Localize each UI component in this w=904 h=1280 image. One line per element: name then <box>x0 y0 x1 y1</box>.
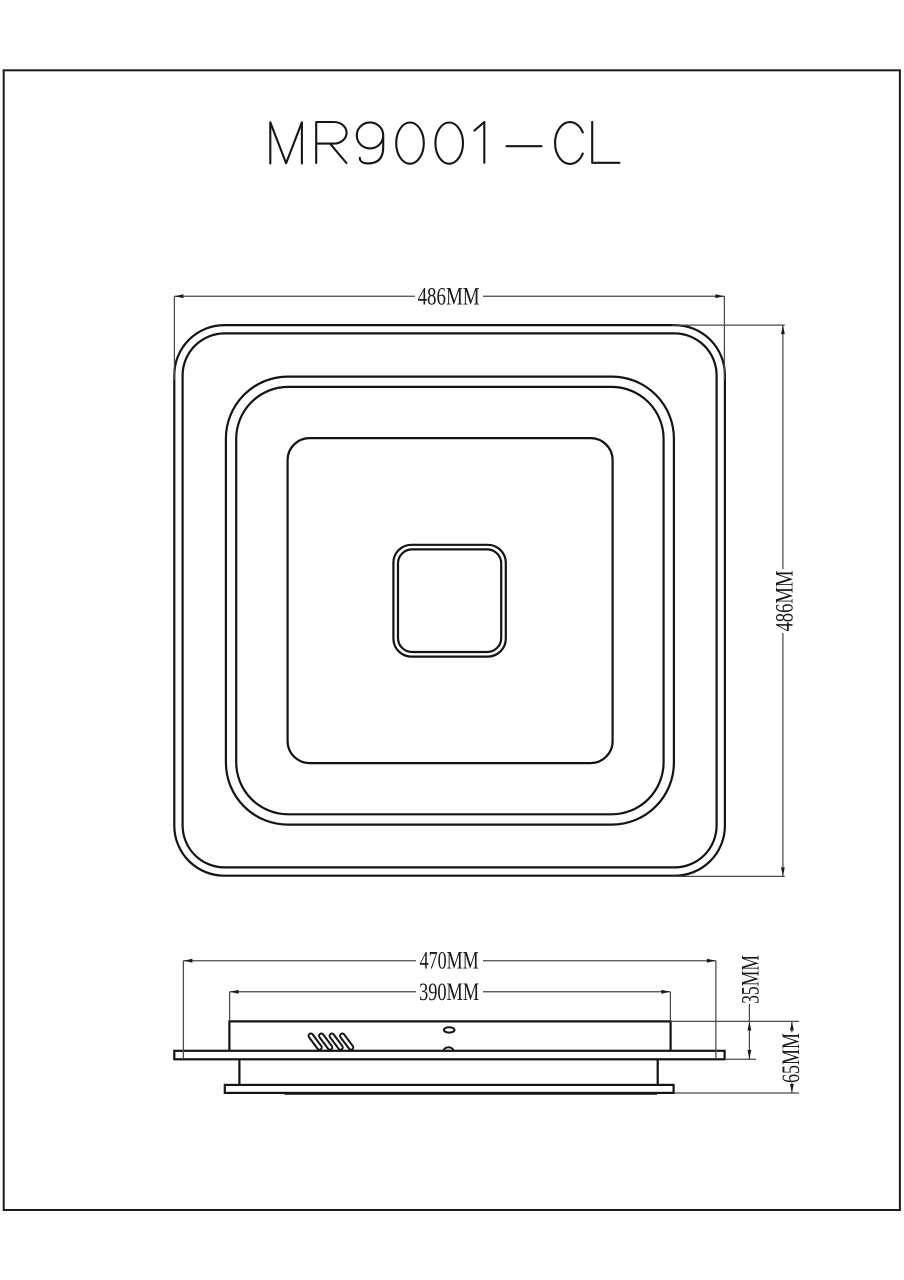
svg-text:390MM: 390MM <box>419 979 479 1006</box>
svg-text:486MM: 486MM <box>772 571 799 632</box>
svg-text:35MM: 35MM <box>738 955 765 1004</box>
svg-text:65MM: 65MM <box>778 1033 805 1083</box>
svg-text:470MM: 470MM <box>420 948 479 975</box>
svg-text:486MM: 486MM <box>418 283 480 310</box>
